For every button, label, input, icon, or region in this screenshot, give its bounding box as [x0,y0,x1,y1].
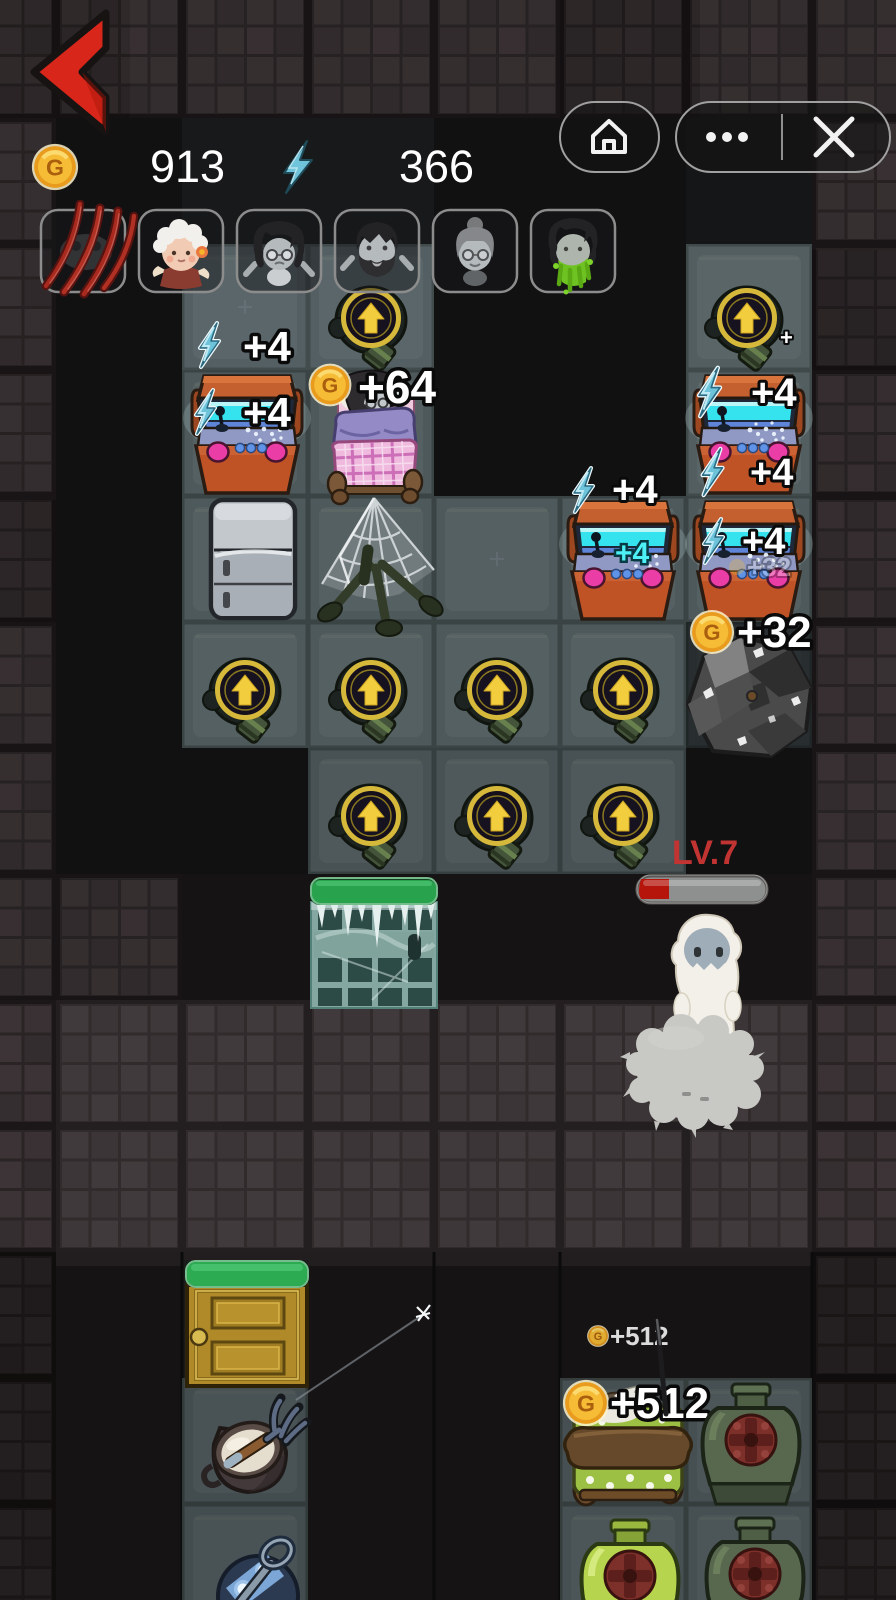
svg-text:LV.7: LV.7 [672,834,738,872]
svg-text:+4: +4 [243,389,292,436]
svg-text:+4: +4 [750,452,793,494]
svg-text:+4: +4 [615,537,650,570]
svg-text:+32: +32 [737,608,812,657]
svg-text:+: + [780,325,793,350]
svg-text:366: 366 [399,141,474,192]
svg-text:+64: +64 [358,361,436,413]
svg-text:+4: +4 [612,468,658,512]
svg-text:+4: +4 [751,371,797,415]
svg-text:+32: +32 [747,552,791,582]
svg-text:+4: +4 [243,323,292,370]
svg-text:913: 913 [150,141,225,192]
svg-text:+512: +512 [610,1379,709,1428]
